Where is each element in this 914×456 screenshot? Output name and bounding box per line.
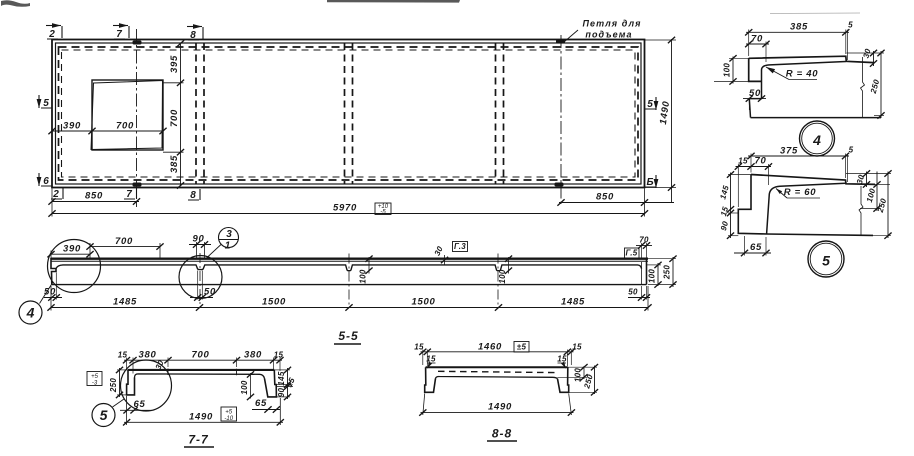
svg-text:395: 395 (169, 55, 180, 73)
svg-text:15: 15 (118, 351, 128, 360)
svg-text:65: 65 (750, 242, 762, 253)
svg-text:+5: +5 (225, 410, 233, 416)
svg-text:R = 40: R = 40 (786, 69, 818, 80)
svg-text:-10: -10 (224, 416, 233, 422)
svg-text:65: 65 (255, 398, 267, 409)
svg-text:1490: 1490 (488, 402, 512, 413)
svg-text:50: 50 (204, 287, 216, 298)
svg-text:5: 5 (43, 98, 49, 109)
svg-text:1: 1 (225, 241, 231, 252)
svg-text:8: 8 (190, 30, 196, 41)
svg-text:850: 850 (596, 192, 614, 203)
svg-text:100: 100 (498, 269, 507, 283)
svg-text:Г.5: Г.5 (626, 249, 638, 258)
svg-text:2: 2 (48, 29, 55, 40)
svg-text:380: 380 (244, 349, 262, 360)
svg-text:-3: -3 (92, 381, 98, 387)
svg-text:380: 380 (139, 349, 157, 360)
svg-text:390: 390 (63, 244, 81, 255)
svg-text:5: 5 (848, 21, 853, 30)
svg-text:100: 100 (359, 269, 368, 283)
svg-text:50: 50 (749, 88, 761, 99)
svg-text:15: 15 (572, 343, 582, 352)
svg-text:375: 375 (780, 146, 798, 157)
svg-text:4: 4 (26, 305, 35, 321)
svg-text:-5: -5 (380, 210, 386, 216)
svg-text:1500: 1500 (412, 297, 436, 308)
svg-text:5: 5 (100, 407, 108, 423)
svg-text:7: 7 (126, 189, 132, 200)
svg-text:100: 100 (648, 269, 657, 283)
svg-text:5-5: 5-5 (338, 329, 358, 343)
svg-text:15: 15 (557, 355, 567, 364)
svg-text:385: 385 (169, 155, 180, 173)
svg-text:50: 50 (628, 288, 638, 297)
svg-text:15: 15 (274, 351, 284, 360)
svg-text:15: 15 (738, 157, 748, 166)
svg-text:250: 250 (109, 378, 118, 393)
svg-text:5970: 5970 (333, 203, 357, 214)
svg-text:5: 5 (822, 253, 830, 269)
svg-text:Петля для: Петля для (582, 19, 641, 29)
svg-text:700: 700 (116, 121, 134, 132)
svg-text:700: 700 (169, 109, 180, 127)
svg-text:700: 700 (192, 350, 210, 361)
svg-text:70: 70 (751, 34, 763, 45)
svg-text:90: 90 (193, 234, 205, 245)
svg-text:1490: 1490 (189, 411, 213, 422)
svg-text:5: 5 (849, 146, 854, 155)
svg-text:100: 100 (240, 380, 249, 394)
svg-text:90: 90 (277, 388, 286, 398)
svg-text:700: 700 (115, 236, 133, 247)
svg-text:5: 5 (647, 99, 653, 110)
svg-text:850: 850 (85, 191, 103, 202)
svg-text:1460: 1460 (478, 342, 502, 353)
svg-text:390: 390 (63, 121, 81, 132)
svg-text:2: 2 (52, 189, 59, 200)
svg-text:±5: ±5 (517, 343, 527, 352)
svg-text:15: 15 (414, 343, 424, 352)
svg-text:15: 15 (426, 355, 436, 364)
svg-text:3: 3 (226, 229, 232, 240)
svg-text:100: 100 (723, 63, 732, 77)
svg-text:100: 100 (574, 368, 583, 382)
svg-text:R = 60: R = 60 (784, 187, 816, 198)
svg-text:1485: 1485 (561, 297, 585, 308)
svg-text:385: 385 (790, 22, 808, 33)
svg-text:6: 6 (43, 176, 49, 187)
svg-text:1485: 1485 (113, 297, 137, 308)
svg-text:1500: 1500 (262, 297, 286, 308)
svg-text:8-8: 8-8 (492, 427, 512, 441)
svg-text:250: 250 (663, 265, 672, 280)
svg-text:8: 8 (190, 190, 196, 201)
svg-text:Б: Б (646, 177, 653, 188)
svg-text:70: 70 (755, 156, 767, 167)
svg-text:+5: +5 (91, 374, 99, 380)
svg-text:7-7: 7-7 (188, 433, 209, 447)
svg-text:7: 7 (116, 29, 122, 40)
svg-text:Г.3: Г.3 (454, 242, 466, 251)
svg-text:4: 4 (812, 132, 821, 148)
svg-text:подъема: подъема (585, 30, 632, 40)
